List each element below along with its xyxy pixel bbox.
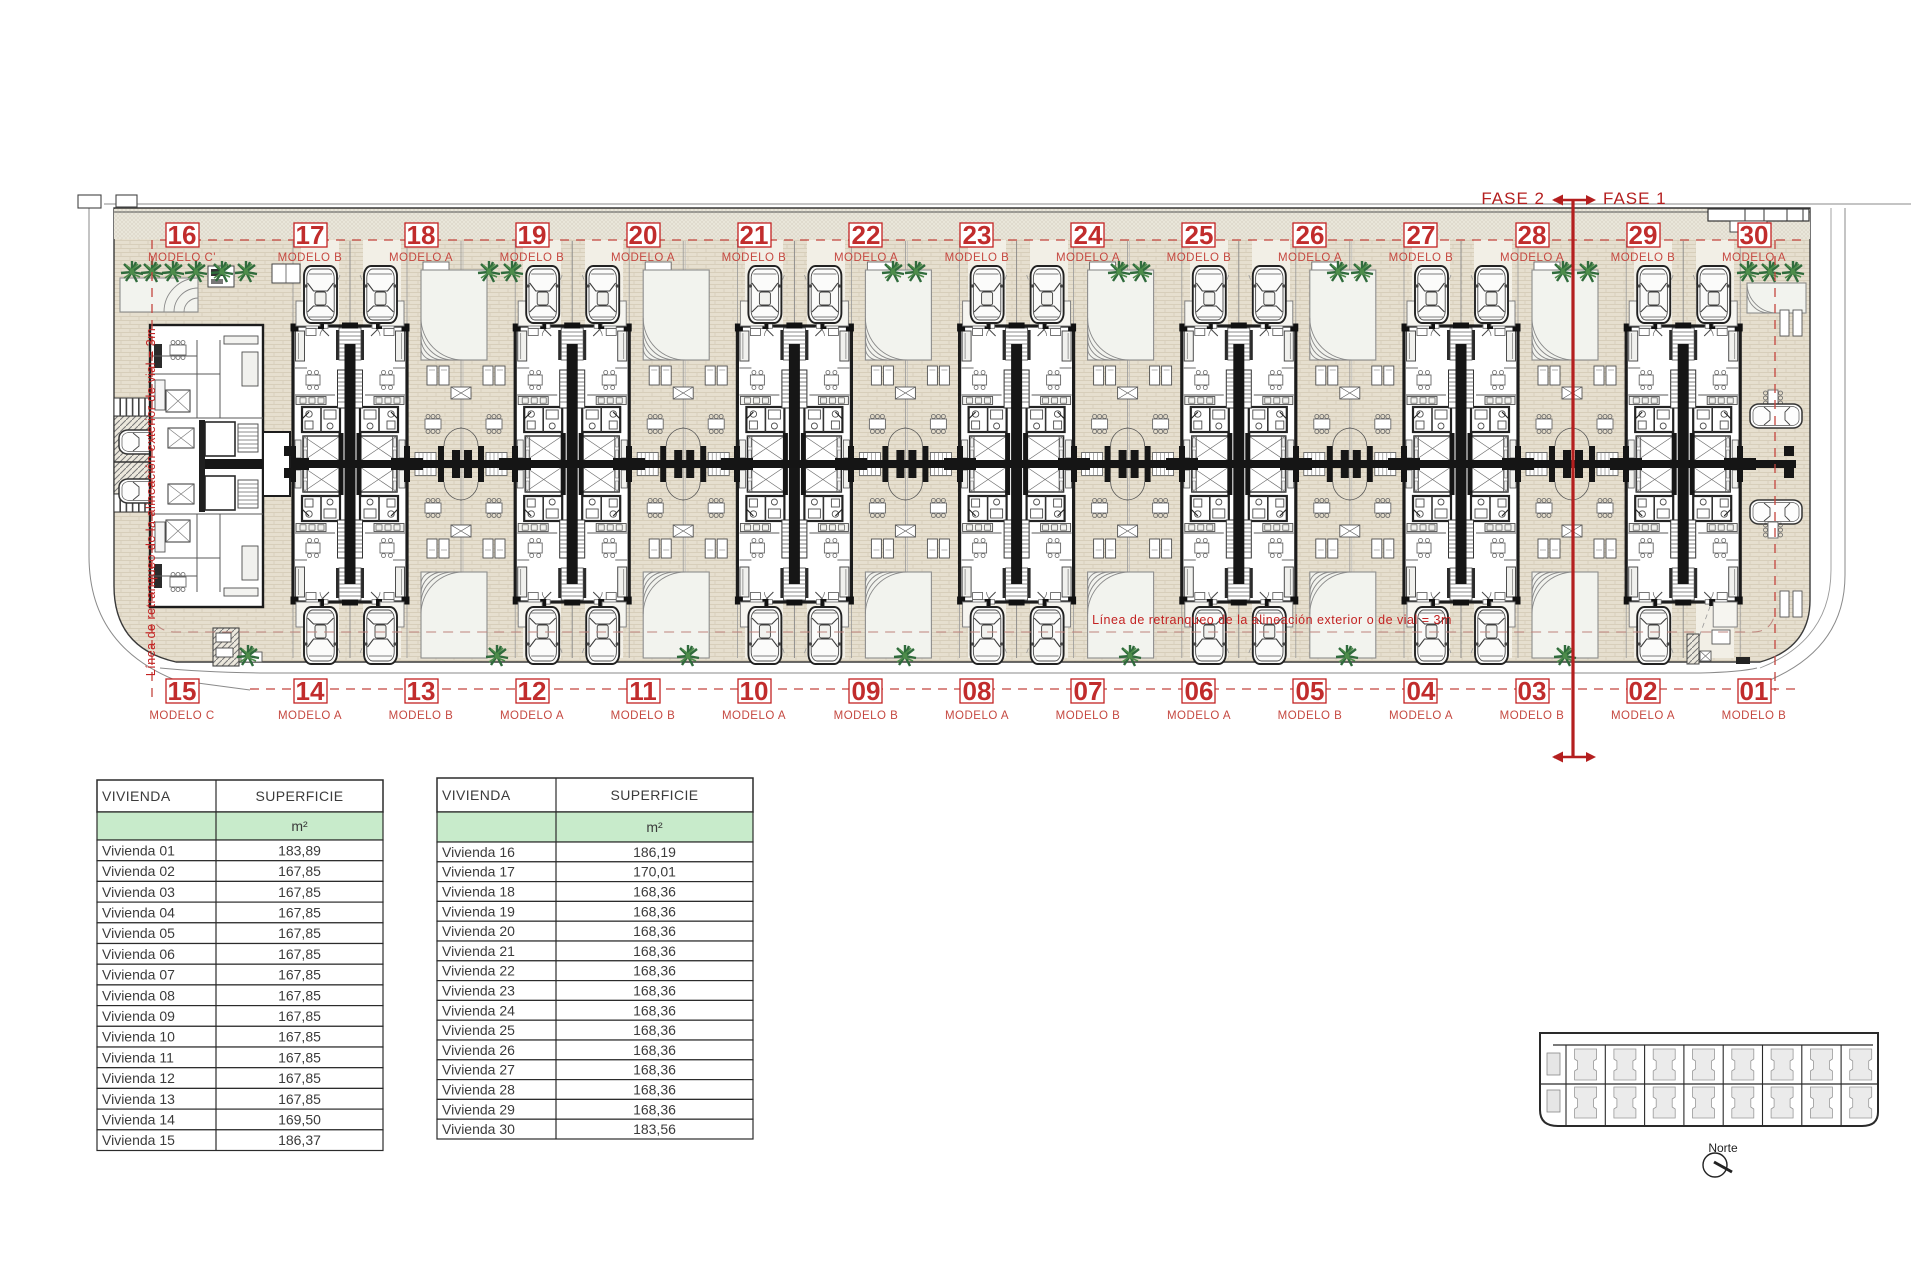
svg-text:168,36: 168,36 (633, 943, 676, 959)
svg-text:11: 11 (629, 676, 657, 706)
svg-text:MODELO B: MODELO B (834, 710, 899, 722)
svg-text:27: 27 (1407, 220, 1436, 250)
svg-text:Vivienda 25: Vivienda 25 (442, 1022, 515, 1038)
svg-text:MODELO B: MODELO B (945, 252, 1010, 264)
svg-text:MODELO A: MODELO A (945, 710, 1009, 722)
svg-text:VIVIENDA: VIVIENDA (102, 788, 171, 804)
svg-text:02: 02 (1629, 676, 1658, 706)
svg-text:Vivienda 06: Vivienda 06 (102, 946, 175, 962)
svg-text:168,36: 168,36 (633, 884, 676, 900)
svg-text:168,36: 168,36 (633, 923, 676, 939)
svg-text:MODELO B: MODELO B (389, 710, 454, 722)
svg-text:Vivienda 30: Vivienda 30 (442, 1121, 515, 1137)
svg-text:168,36: 168,36 (633, 983, 676, 999)
svg-text:07: 07 (1074, 676, 1103, 706)
svg-text:MODELO B: MODELO B (611, 710, 676, 722)
svg-text:186,19: 186,19 (633, 844, 676, 860)
svg-text:Vivienda 04: Vivienda 04 (102, 905, 175, 921)
svg-text:167,85: 167,85 (278, 863, 321, 879)
svg-text:167,85: 167,85 (278, 1008, 321, 1024)
svg-text:MODELO B: MODELO B (1722, 710, 1787, 722)
svg-text:Vivienda 17: Vivienda 17 (442, 864, 515, 880)
svg-text:MODELO B: MODELO B (722, 252, 787, 264)
svg-text:MODELO A: MODELO A (1722, 252, 1786, 264)
svg-text:Vivienda 10: Vivienda 10 (102, 1029, 175, 1045)
svg-text:Vivienda 05: Vivienda 05 (102, 925, 175, 941)
svg-text:SUPERFICIE: SUPERFICIE (610, 787, 698, 803)
svg-text:Vivienda 22: Vivienda 22 (442, 963, 515, 979)
svg-text:168,36: 168,36 (633, 1022, 676, 1038)
svg-text:167,85: 167,85 (278, 967, 321, 983)
svg-text:168,36: 168,36 (633, 1042, 676, 1058)
svg-text:19: 19 (518, 220, 547, 250)
svg-text:Vivienda 02: Vivienda 02 (102, 863, 175, 879)
svg-text:168,36: 168,36 (633, 903, 676, 919)
svg-text:MODELO A: MODELO A (611, 252, 675, 264)
svg-text:167,85: 167,85 (278, 1029, 321, 1045)
svg-text:186,37: 186,37 (278, 1132, 321, 1148)
svg-text:05: 05 (1296, 676, 1325, 706)
svg-text:Vivienda 03: Vivienda 03 (102, 884, 175, 900)
svg-text:167,85: 167,85 (278, 987, 321, 1003)
svg-text:22: 22 (852, 220, 881, 250)
svg-text:21: 21 (740, 220, 769, 250)
svg-text:Vivienda 21: Vivienda 21 (442, 943, 515, 959)
svg-text:30: 30 (1740, 220, 1769, 250)
svg-text:MODELO A: MODELO A (389, 252, 453, 264)
svg-text:17: 17 (296, 220, 325, 250)
svg-text:MODELO A: MODELO A (278, 710, 342, 722)
svg-text:29: 29 (1629, 220, 1658, 250)
svg-text:28: 28 (1518, 220, 1547, 250)
svg-text:MODELO B: MODELO B (1278, 710, 1343, 722)
svg-text:167,85: 167,85 (278, 1049, 321, 1065)
svg-text:Vivienda 19: Vivienda 19 (442, 903, 515, 919)
svg-text:Vivienda 08: Vivienda 08 (102, 987, 175, 1003)
svg-text:SUPERFICIE: SUPERFICIE (255, 788, 343, 804)
svg-text:13: 13 (407, 676, 436, 706)
svg-text:MODELO A: MODELO A (1389, 710, 1453, 722)
svg-text:MODELO B: MODELO B (1389, 252, 1454, 264)
svg-text:Vivienda 18: Vivienda 18 (442, 884, 515, 900)
svg-text:Línea de retranqueo de la alin: Línea de retranqueo de la alineación ext… (144, 328, 158, 676)
svg-text:Vivienda 24: Vivienda 24 (442, 1002, 515, 1018)
svg-text:Vivienda 01: Vivienda 01 (102, 842, 175, 858)
svg-text:169,50: 169,50 (278, 1112, 321, 1128)
svg-text:23: 23 (963, 220, 992, 250)
svg-text:04: 04 (1407, 676, 1436, 706)
svg-text:15: 15 (168, 676, 197, 706)
svg-text:MODELO C: MODELO C (149, 710, 214, 722)
svg-text:Vivienda 16: Vivienda 16 (442, 844, 515, 860)
svg-text:FASE 1: FASE 1 (1603, 189, 1667, 208)
svg-text:08: 08 (963, 676, 992, 706)
svg-text:168,36: 168,36 (633, 1002, 676, 1018)
svg-text:MODELO A: MODELO A (834, 252, 898, 264)
svg-text:m²: m² (646, 819, 663, 835)
svg-text:MODELO B: MODELO B (1056, 710, 1121, 722)
svg-text:FASE 2: FASE 2 (1481, 189, 1545, 208)
svg-text:MODELO C': MODELO C' (148, 252, 216, 264)
svg-text:168,36: 168,36 (633, 963, 676, 979)
svg-text:167,85: 167,85 (278, 946, 321, 962)
svg-text:MODELO A: MODELO A (500, 710, 564, 722)
svg-text:MODELO A: MODELO A (1611, 710, 1675, 722)
svg-text:167,85: 167,85 (278, 905, 321, 921)
svg-text:183,56: 183,56 (633, 1121, 676, 1137)
svg-text:Vivienda 11: Vivienda 11 (102, 1049, 174, 1065)
svg-text:MODELO B: MODELO B (500, 252, 565, 264)
svg-text:Vivienda 28: Vivienda 28 (442, 1082, 515, 1098)
svg-text:14: 14 (296, 676, 325, 706)
svg-text:167,85: 167,85 (278, 925, 321, 941)
svg-text:m²: m² (291, 818, 308, 834)
svg-text:Vivienda 07: Vivienda 07 (102, 967, 175, 983)
svg-text:26: 26 (1296, 220, 1325, 250)
svg-text:10: 10 (740, 676, 769, 706)
svg-text:168,36: 168,36 (633, 1101, 676, 1117)
svg-text:06: 06 (1185, 676, 1214, 706)
svg-text:167,85: 167,85 (278, 884, 321, 900)
svg-text:Vivienda 14: Vivienda 14 (102, 1112, 175, 1128)
svg-text:MODELO A: MODELO A (1056, 252, 1120, 264)
svg-text:25: 25 (1185, 220, 1214, 250)
svg-text:12: 12 (518, 676, 547, 706)
svg-text:Línea de retranqueo de la alin: Línea de retranqueo de la alineación ext… (1092, 613, 1452, 627)
svg-text:20: 20 (629, 220, 658, 250)
svg-text:09: 09 (852, 676, 881, 706)
svg-text:Vivienda 29: Vivienda 29 (442, 1101, 515, 1117)
svg-text:MODELO B: MODELO B (1500, 710, 1565, 722)
svg-text:Vivienda 20: Vivienda 20 (442, 923, 515, 939)
svg-text:Vivienda 09: Vivienda 09 (102, 1008, 175, 1024)
svg-text:MODELO A: MODELO A (1278, 252, 1342, 264)
svg-text:170,01: 170,01 (633, 864, 676, 880)
svg-text:Vivienda 26: Vivienda 26 (442, 1042, 515, 1058)
svg-text:Vivienda 27: Vivienda 27 (442, 1062, 515, 1078)
svg-text:VIVIENDA: VIVIENDA (442, 787, 511, 803)
svg-text:183,89: 183,89 (278, 842, 321, 858)
svg-text:Vivienda 23: Vivienda 23 (442, 983, 515, 999)
svg-text:MODELO B: MODELO B (278, 252, 343, 264)
svg-text:03: 03 (1518, 676, 1547, 706)
svg-text:24: 24 (1074, 220, 1103, 250)
svg-text:16: 16 (168, 220, 197, 250)
svg-text:MODELO A: MODELO A (1500, 252, 1564, 264)
svg-text:168,36: 168,36 (633, 1082, 676, 1098)
svg-text:Vivienda 13: Vivienda 13 (102, 1091, 175, 1107)
svg-text:18: 18 (407, 220, 436, 250)
svg-text:MODELO B: MODELO B (1167, 252, 1232, 264)
svg-text:Vivienda 15: Vivienda 15 (102, 1132, 175, 1148)
svg-text:167,85: 167,85 (278, 1070, 321, 1086)
svg-text:MODELO A: MODELO A (1167, 710, 1231, 722)
svg-text:01: 01 (1740, 676, 1769, 706)
svg-text:MODELO A: MODELO A (722, 710, 786, 722)
svg-text:MODELO B: MODELO B (1611, 252, 1676, 264)
svg-text:168,36: 168,36 (633, 1062, 676, 1078)
svg-text:Vivienda 12: Vivienda 12 (102, 1070, 175, 1086)
svg-text:167,85: 167,85 (278, 1091, 321, 1107)
